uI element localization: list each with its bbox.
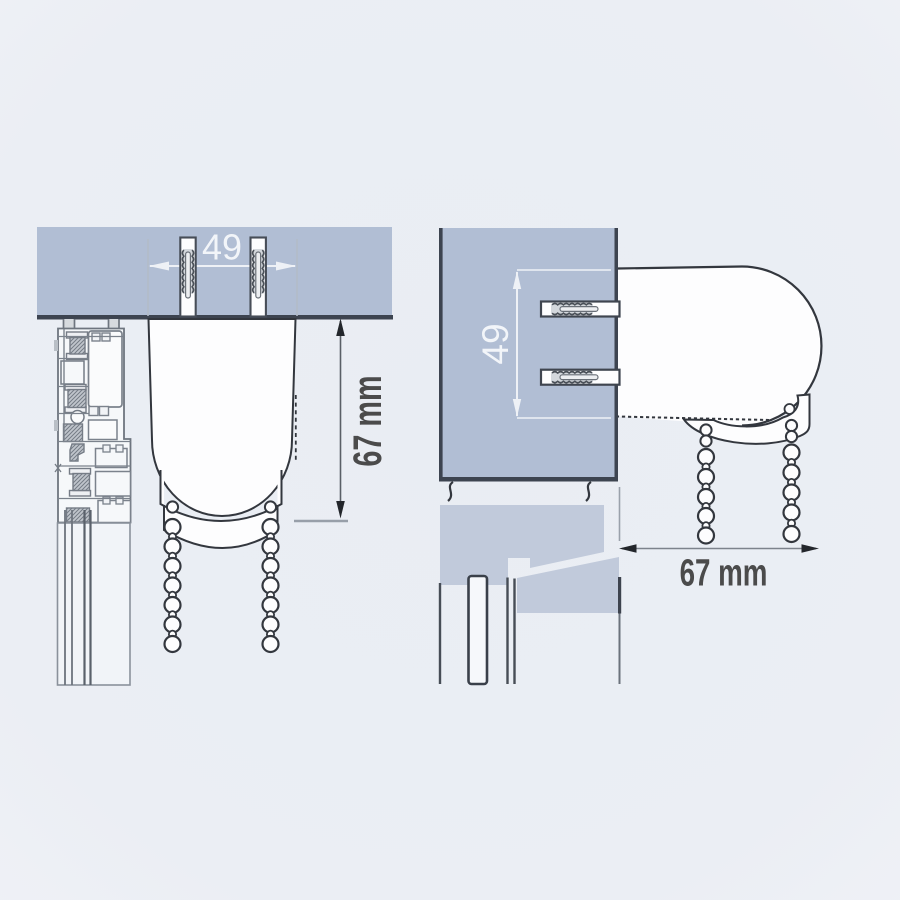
- svg-text:49: 49: [475, 323, 516, 364]
- svg-text:67 mm: 67 mm: [345, 375, 390, 466]
- svg-text:67 mm: 67 mm: [680, 552, 768, 594]
- svg-text:49: 49: [202, 227, 242, 268]
